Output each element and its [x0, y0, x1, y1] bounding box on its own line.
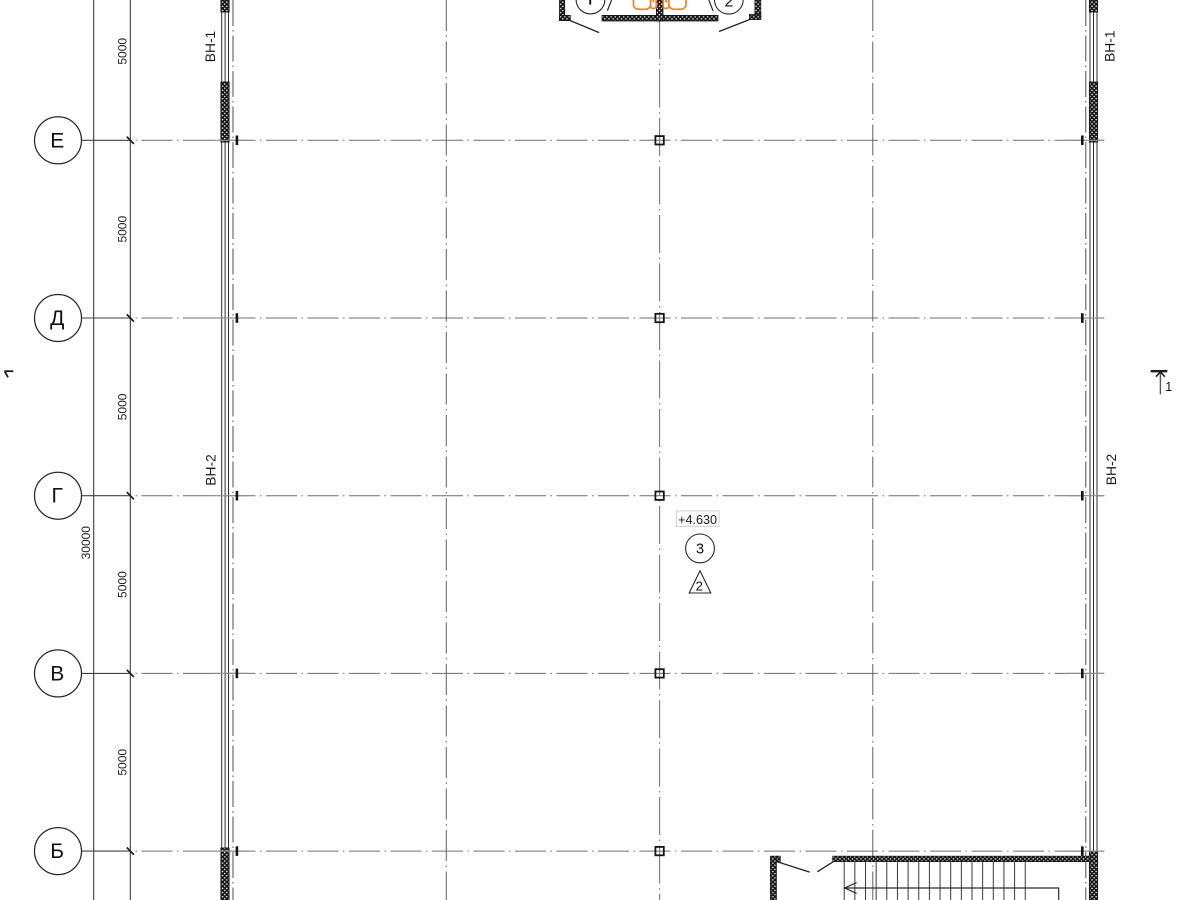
svg-text:В: В	[50, 662, 64, 685]
svg-text:3: 3	[696, 542, 704, 558]
svg-text:Д: Д	[50, 307, 64, 330]
svg-text:5000: 5000	[115, 38, 129, 65]
svg-text:ВН-2: ВН-2	[1104, 454, 1119, 485]
svg-text:1: 1	[1165, 380, 1172, 394]
svg-text:5000: 5000	[115, 393, 129, 420]
svg-text:Г: Г	[52, 485, 63, 508]
svg-text:ВН-2: ВН-2	[204, 454, 219, 485]
svg-text:5000: 5000	[115, 749, 129, 776]
svg-text:5000: 5000	[115, 571, 129, 598]
svg-text:Б: Б	[50, 840, 64, 863]
svg-text:Е: Е	[50, 129, 64, 152]
svg-text:5000: 5000	[115, 216, 129, 243]
svg-text:ВН-1: ВН-1	[1103, 30, 1118, 61]
svg-text:30000: 30000	[79, 526, 93, 560]
svg-text:+4.630: +4.630	[678, 513, 717, 527]
svg-text:ВН-1: ВН-1	[203, 31, 218, 62]
svg-text:2: 2	[725, 0, 734, 11]
svg-text:2: 2	[696, 579, 703, 594]
